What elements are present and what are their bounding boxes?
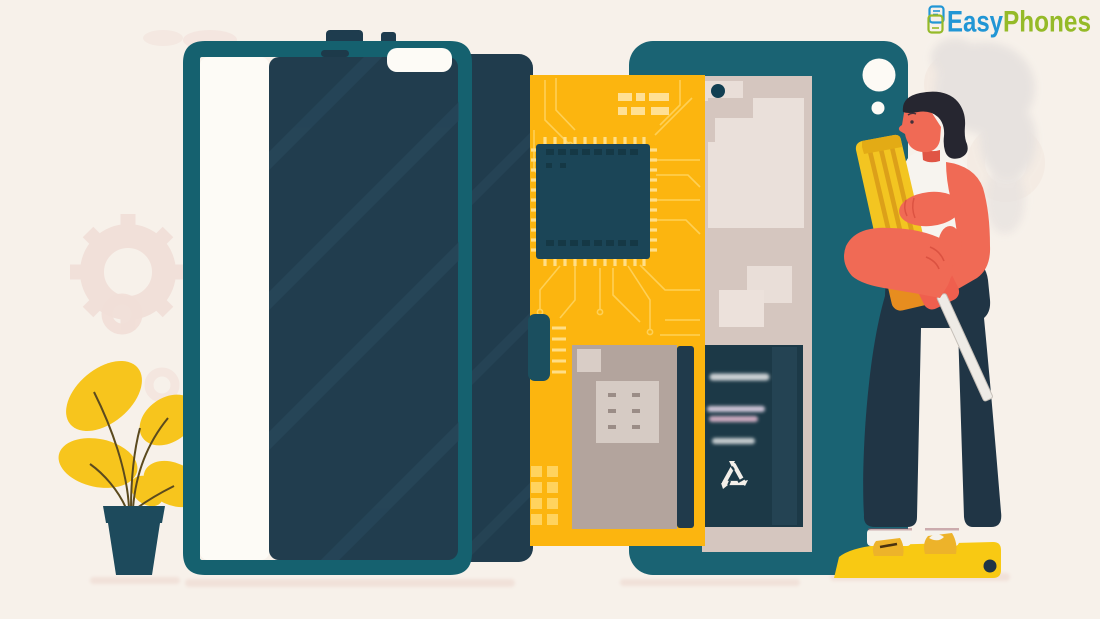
svg-text:Easy: Easy bbox=[947, 6, 1003, 39]
svg-text:Phones: Phones bbox=[1003, 6, 1091, 39]
